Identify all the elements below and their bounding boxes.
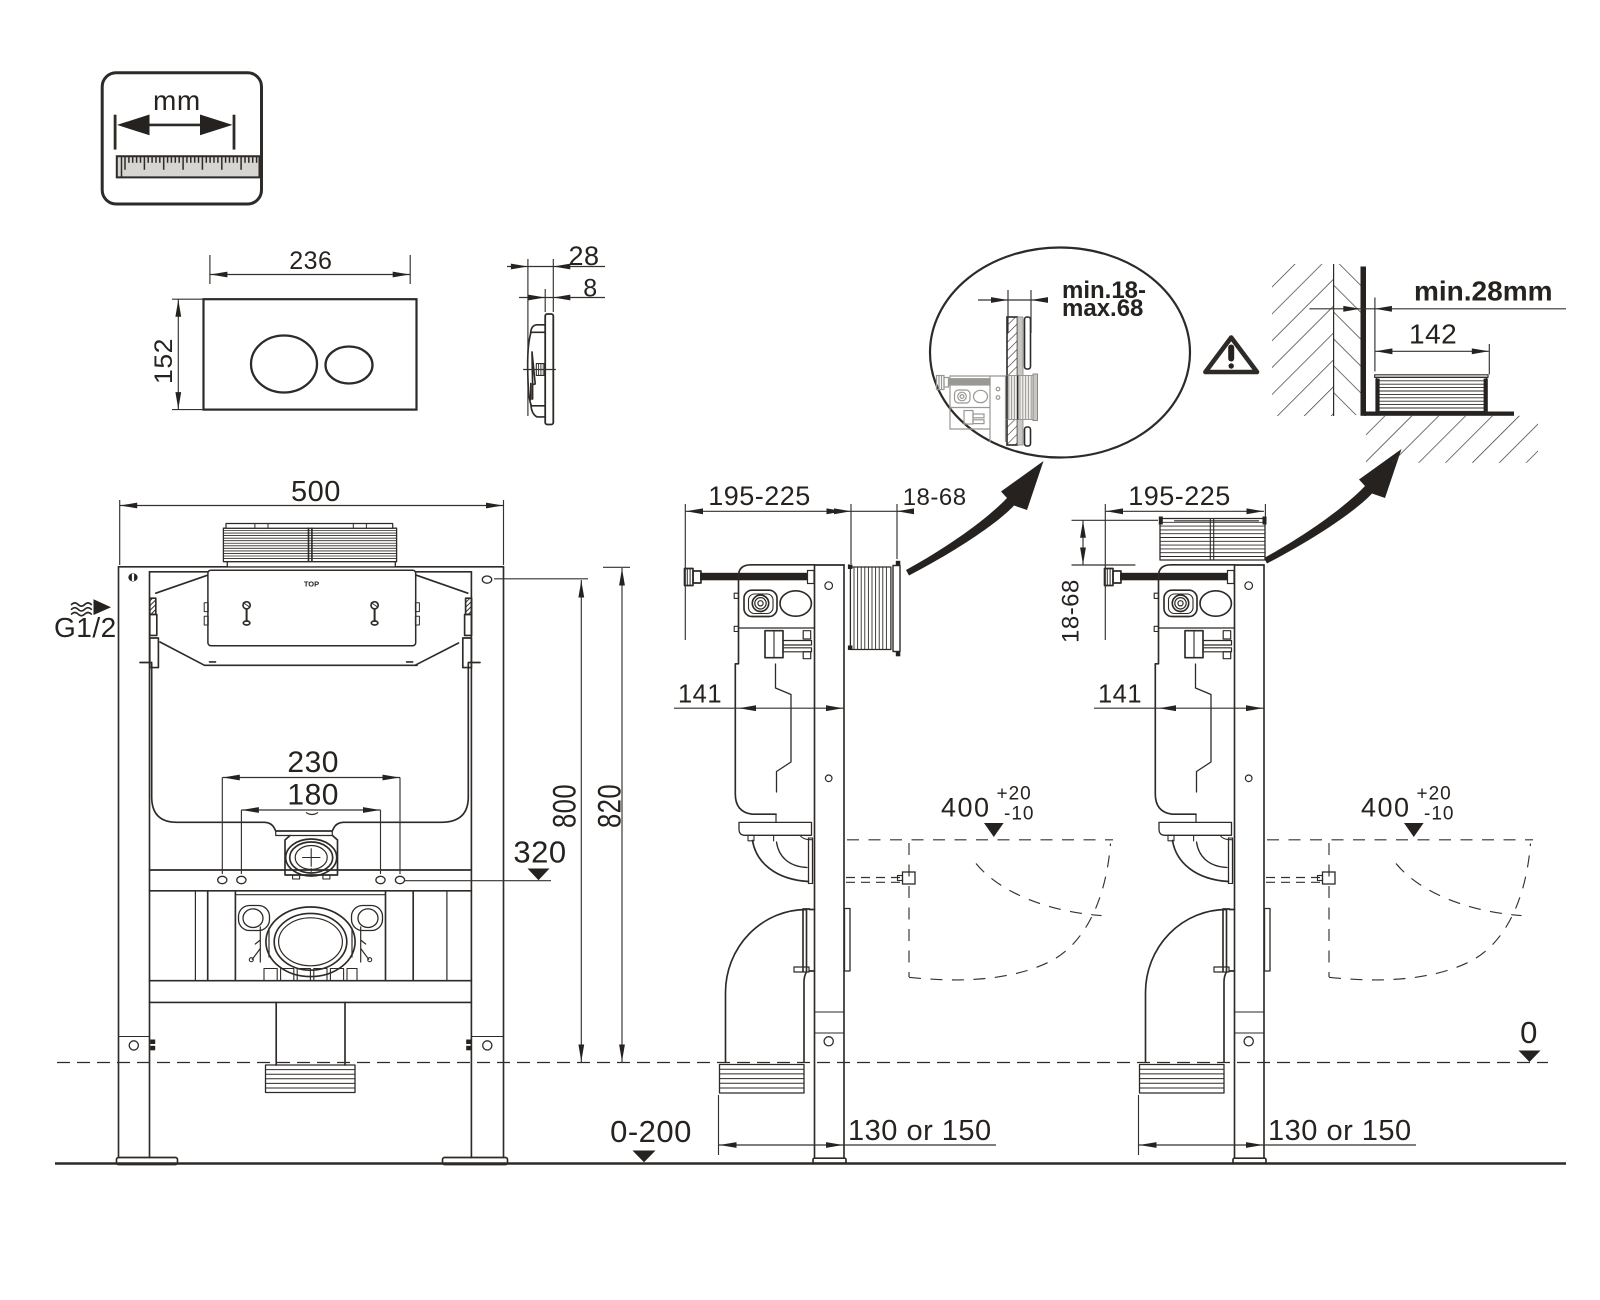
svg-text:+20: +20 (997, 784, 1032, 805)
svg-text:0-200: 0-200 (610, 1114, 692, 1149)
svg-text:max.68: max.68 (1062, 295, 1143, 322)
svg-text:TOP: TOP (304, 580, 319, 589)
svg-text:18-68: 18-68 (903, 484, 967, 511)
svg-text:142: 142 (1409, 319, 1457, 350)
svg-text:18-68: 18-68 (1058, 579, 1085, 643)
svg-text:-10: -10 (1004, 804, 1034, 825)
svg-text:0: 0 (1520, 1015, 1538, 1050)
svg-text:8: 8 (583, 275, 597, 303)
svg-text:mm: mm (153, 85, 201, 116)
svg-text:152: 152 (150, 338, 178, 384)
svg-text:G1/2: G1/2 (54, 612, 117, 643)
svg-text:230: 230 (287, 746, 339, 779)
svg-text:195-225: 195-225 (708, 481, 811, 511)
svg-text:130 or 150: 130 or 150 (848, 1115, 992, 1147)
svg-text:236: 236 (289, 247, 332, 275)
svg-text:500: 500 (291, 476, 341, 508)
svg-text:400: 400 (941, 793, 991, 823)
svg-text:min.28mm: min.28mm (1414, 276, 1553, 307)
svg-text:141: 141 (678, 681, 722, 709)
svg-text:28: 28 (568, 241, 599, 271)
svg-text:320: 320 (513, 835, 566, 870)
svg-text:800: 800 (547, 784, 583, 828)
svg-text:180: 180 (287, 779, 339, 812)
svg-text:820: 820 (592, 784, 628, 828)
